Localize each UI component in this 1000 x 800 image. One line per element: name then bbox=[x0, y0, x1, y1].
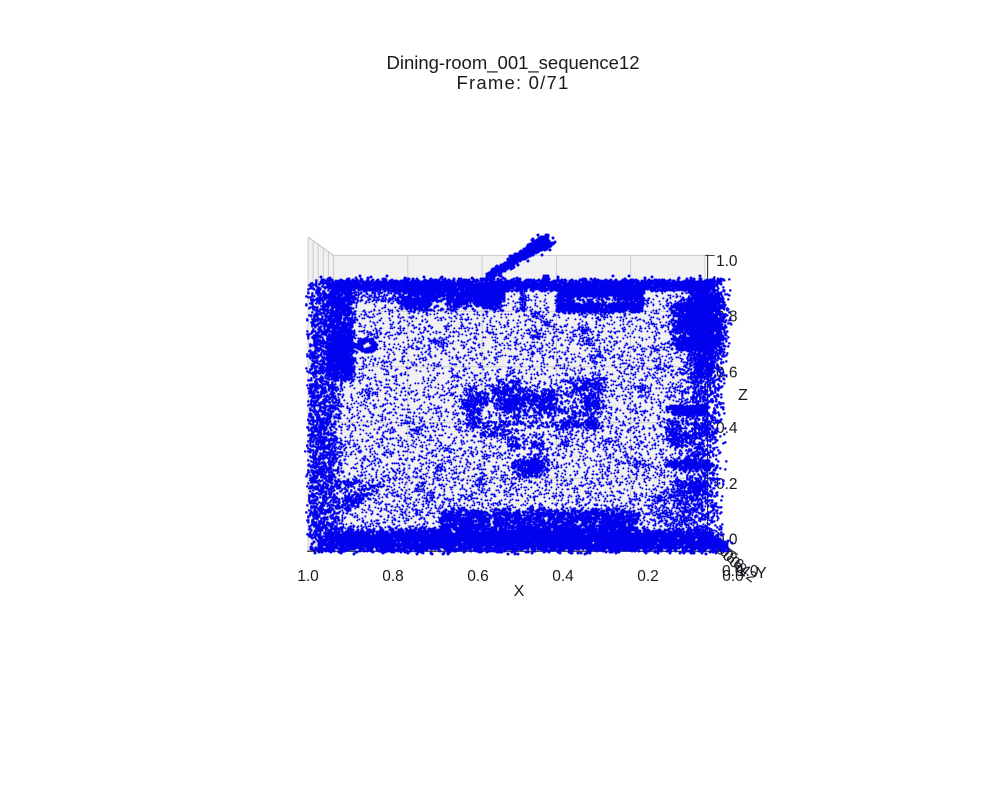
svg-text:Z: Z bbox=[738, 387, 748, 404]
svg-text:1.0: 1.0 bbox=[716, 253, 738, 270]
svg-text:0.4: 0.4 bbox=[716, 420, 738, 437]
svg-text:X: X bbox=[514, 583, 525, 600]
svg-text:Frame: 0/71: Frame: 0/71 bbox=[457, 72, 570, 93]
svg-text:0.4: 0.4 bbox=[552, 568, 574, 585]
svg-text:1.0: 1.0 bbox=[297, 568, 319, 585]
svg-text:Dining-room_001_sequence12: Dining-room_001_sequence12 bbox=[386, 52, 639, 74]
svg-text:0.2: 0.2 bbox=[637, 568, 659, 585]
svg-text:0.0: 0.0 bbox=[722, 568, 744, 585]
svg-text:Y: Y bbox=[756, 565, 767, 582]
svg-text:0.6: 0.6 bbox=[467, 568, 489, 585]
svg-text:0.8: 0.8 bbox=[382, 568, 404, 585]
